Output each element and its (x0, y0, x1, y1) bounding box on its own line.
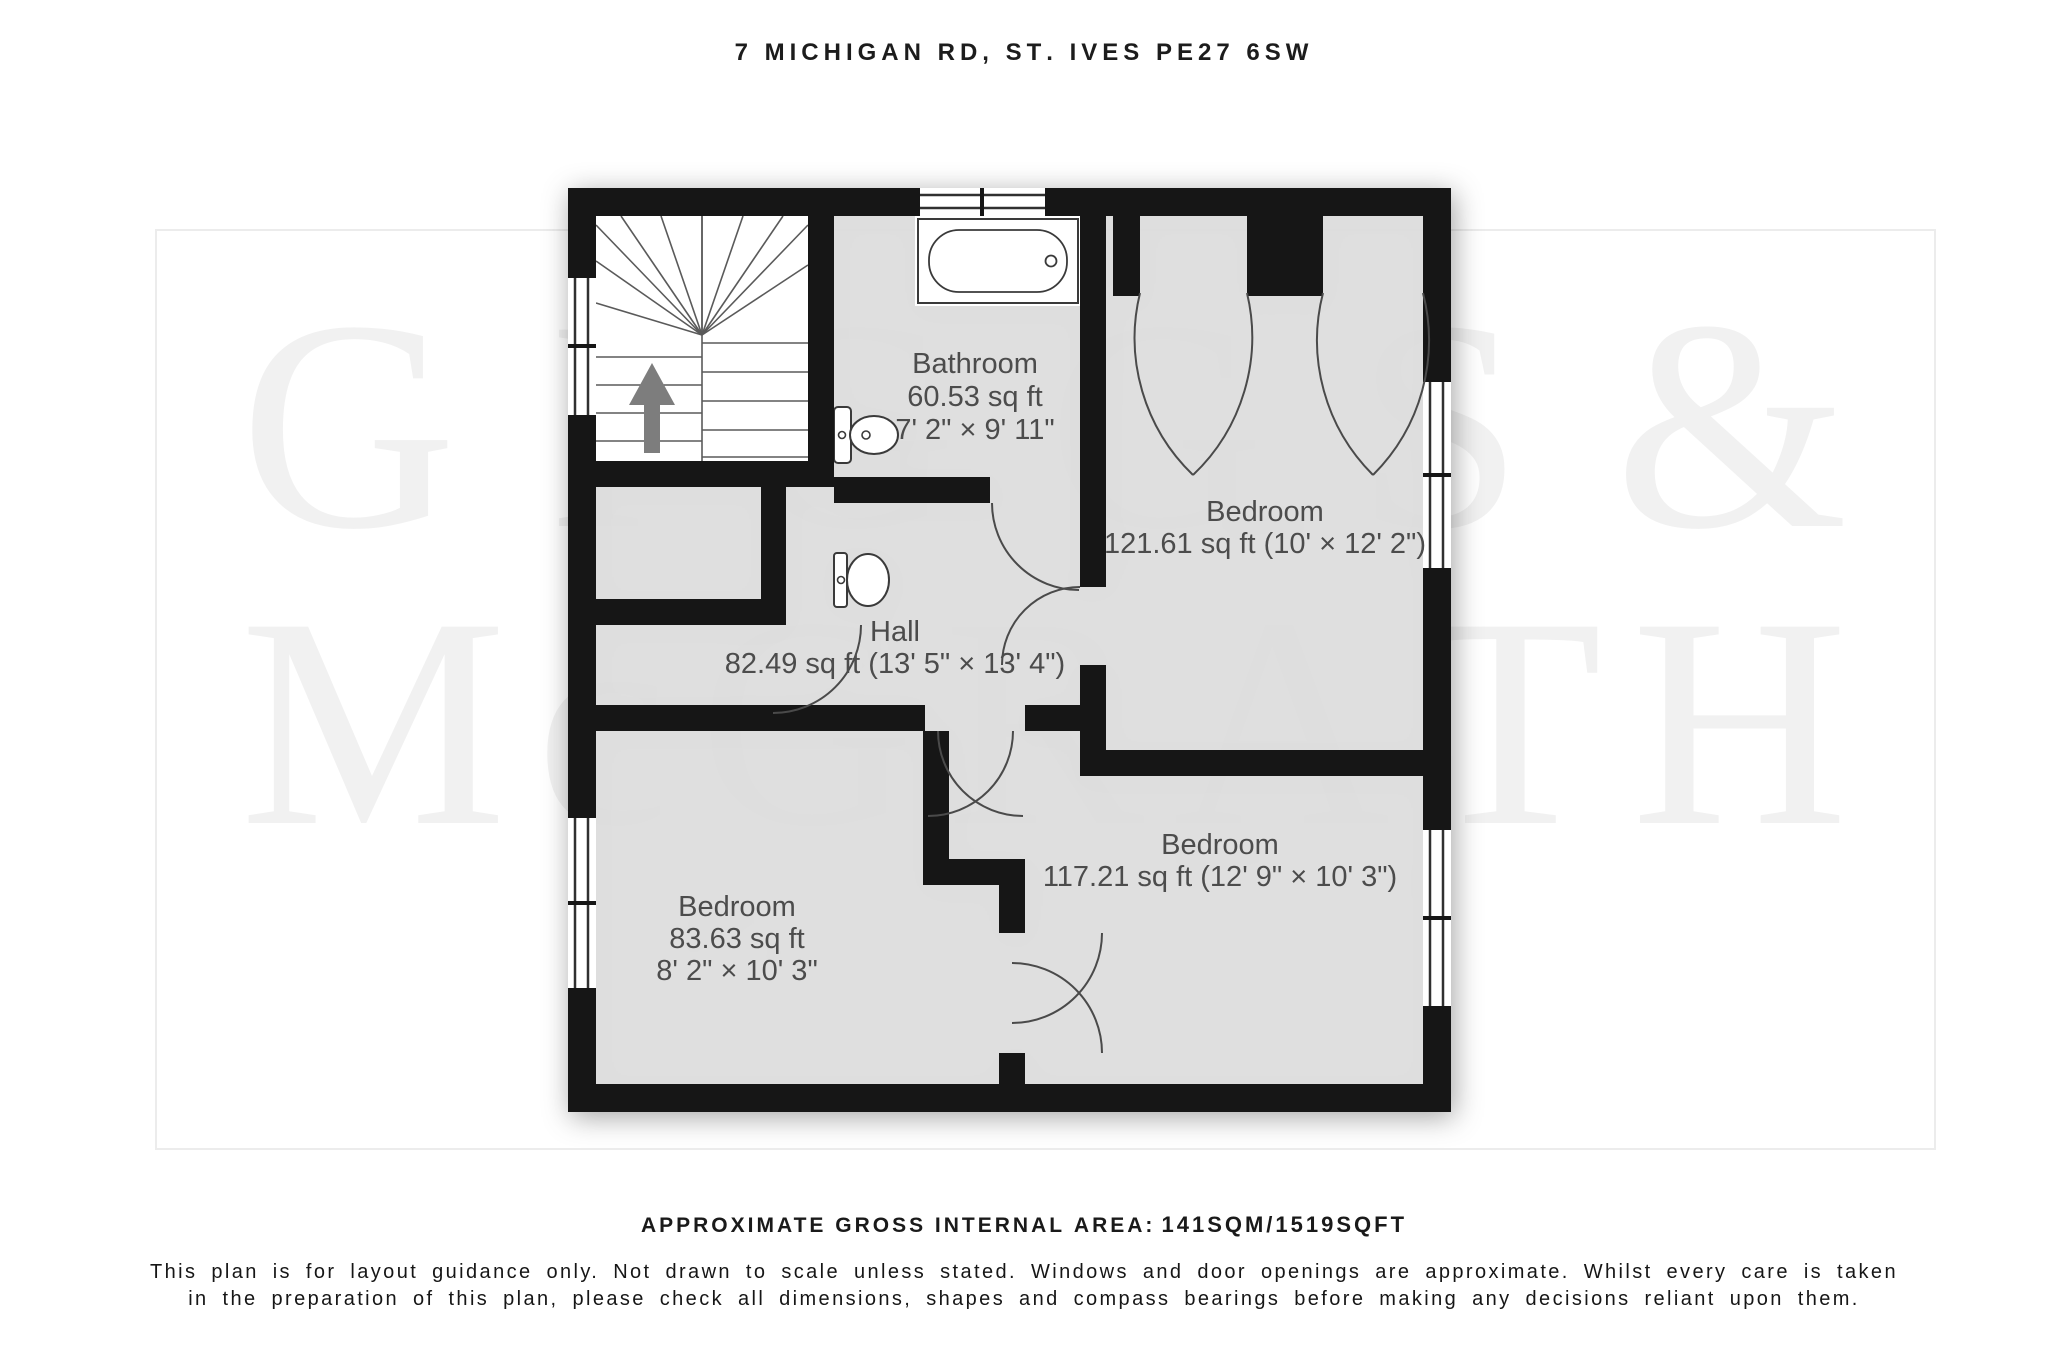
area-value: 141sqm/1519sqft (1161, 1203, 1407, 1239)
bedroom-bottom-right-label: Bedroom (1161, 829, 1279, 861)
bedroom-bottom-left-label: Bedroom (678, 891, 796, 923)
bathroom-label: Bathroom (912, 348, 1038, 380)
window-bedroom-left (568, 813, 596, 993)
floor-plan: Bathroom 60.53 sq ft 7' 2" × 9' 11" Bedr… (565, 185, 1520, 1135)
area-label: approximate gross internal area: (641, 1206, 1155, 1239)
sink-icon (834, 553, 889, 607)
bedroom-bottom-right-area: 117.21 sq ft (12' 9" × 10' 3") (1043, 861, 1397, 893)
disclaimer-line-1: This plan is for layout guidance only. N… (0, 1259, 2048, 1286)
bathroom-dims: 7' 2" × 9' 11" (895, 414, 1054, 446)
bedroom-bottom-left-dims: 8' 2" × 10' 3" (656, 955, 817, 987)
window-bedroom-top-right (1423, 377, 1451, 573)
window-bathroom-top (915, 188, 1050, 216)
bedroom-bottom-left-area: 83.63 sq ft (669, 923, 804, 955)
floorplan-page: { "title": "7 Michigan Rd, St. Ives PE27… (0, 0, 2048, 1365)
page-title: 7 Michigan Rd, St. Ives PE27 6SW (0, 30, 2048, 69)
bedroom-top-right-area: 121.61 sq ft (10' × 12' 2") (1104, 528, 1426, 560)
disclaimer: This plan is for layout guidance only. N… (0, 1259, 2048, 1313)
window-bedroom-bottom-right (1423, 825, 1451, 1011)
bathtub-icon (918, 219, 1078, 303)
window-stairs-left (568, 273, 596, 420)
bedroom-top-right-label: Bedroom (1206, 496, 1324, 528)
hall-label: Hall (870, 616, 920, 648)
hall-area: 82.49 sq ft (13' 5" × 13' 4") (725, 648, 1065, 680)
disclaimer-line-2: in the preparation of this plan, please … (0, 1286, 2048, 1313)
bathroom-area: 60.53 sq ft (907, 381, 1042, 413)
gross-internal-area: approximate gross internal area: 141sqm/… (0, 1203, 2048, 1240)
